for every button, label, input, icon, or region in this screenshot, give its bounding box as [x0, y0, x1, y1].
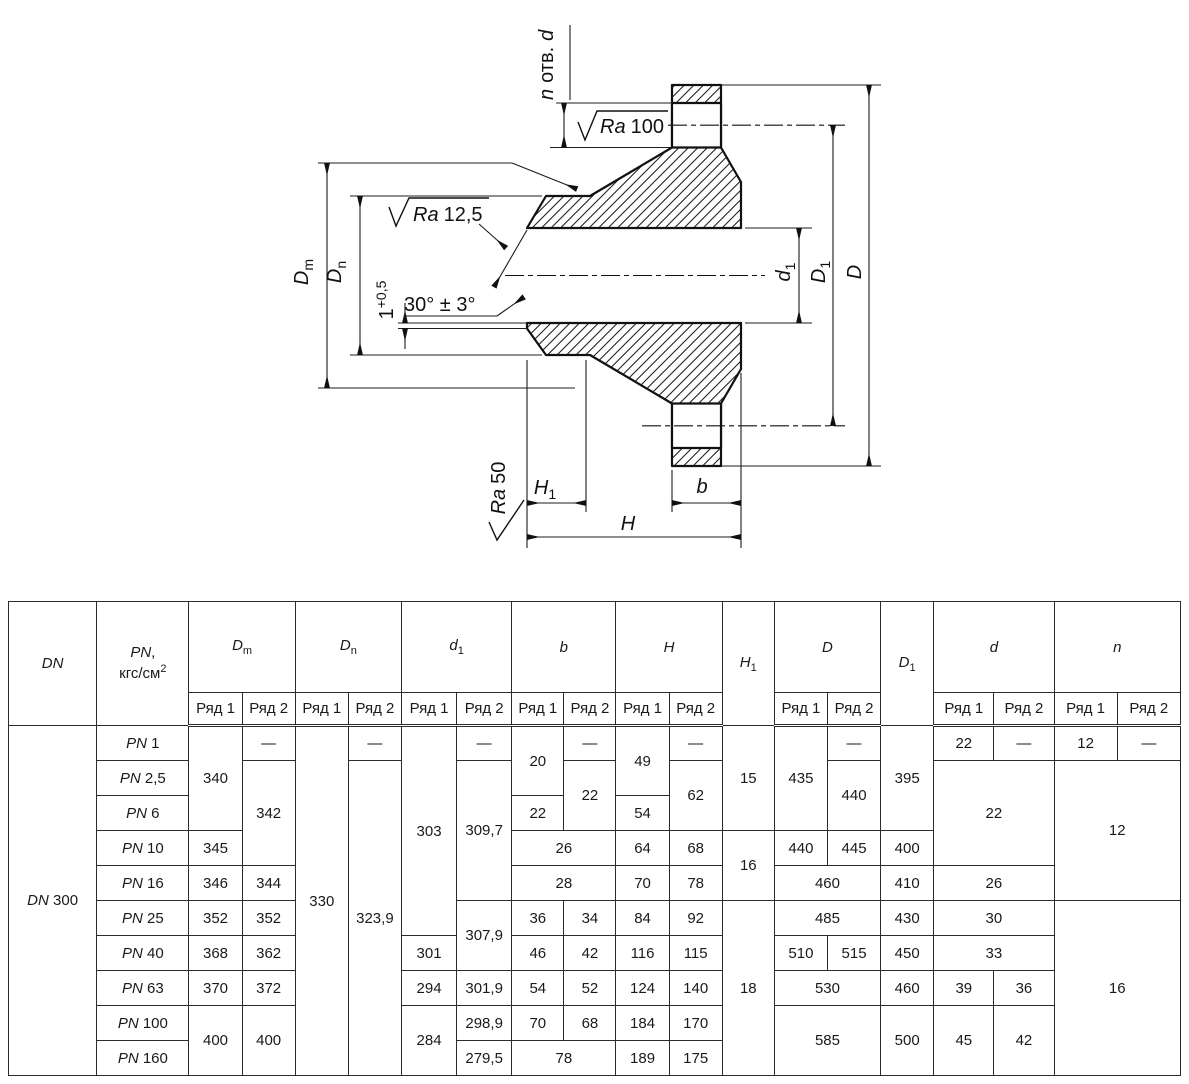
table-cell: 450: [881, 936, 934, 971]
dim-label-D: D: [844, 265, 866, 279]
table-cell: 352: [189, 901, 242, 936]
table-cell: 184: [616, 1006, 669, 1041]
label-land: 1+0,5: [373, 280, 398, 319]
pn-cell: PN 100: [97, 1006, 189, 1041]
table-cell: 400: [881, 831, 934, 866]
pn-cell: PN 16: [97, 866, 189, 901]
table-cell: 346: [189, 866, 242, 901]
table-cell: 45: [934, 1006, 994, 1076]
table-cell: 460: [881, 971, 934, 1006]
col-header-H: H: [616, 602, 722, 693]
pn-cell: PN 40: [97, 936, 189, 971]
col-header-D1: D1: [881, 602, 934, 726]
col-header-d: d: [934, 602, 1054, 693]
subheader-row2: Ряд 2: [242, 693, 295, 726]
flange-top-section: [527, 85, 741, 228]
table-cell: —: [1117, 726, 1180, 761]
subheader-row2: Ряд 2: [564, 693, 616, 726]
table-cell: 52: [564, 971, 616, 1006]
table-cell: 54: [512, 971, 564, 1006]
table-cell: 284: [401, 1006, 456, 1076]
dim-label-D1: D1: [808, 261, 833, 283]
table-cell: 430: [881, 901, 934, 936]
table-cell: 28: [512, 866, 616, 901]
table-cell: 500: [881, 1006, 934, 1076]
table-cell: 370: [189, 971, 242, 1006]
table-cell: 298,9: [457, 1006, 512, 1041]
table-cell: 352: [242, 901, 295, 936]
table-cell: 30: [934, 901, 1054, 936]
table-cell: 301: [401, 936, 456, 971]
table-cell: 42: [564, 936, 616, 971]
table-cell: —: [994, 726, 1054, 761]
table-cell: 39: [934, 971, 994, 1006]
table-cell: 16: [722, 831, 774, 901]
table-cell: 78: [512, 1041, 616, 1076]
table-cell: —: [564, 726, 616, 761]
table-cell: 140: [669, 971, 722, 1006]
table-cell: 510: [774, 936, 827, 971]
standard-page: nотв.d Ra100 Ra12,5 Ra50 30° ± 3° 1+0,5 …: [0, 0, 1189, 1076]
table-cell: 64: [616, 831, 669, 866]
pn-cell: PN 2,5: [97, 761, 189, 796]
dim-label-Dn: Dn: [324, 261, 349, 283]
col-header-H1: H1: [722, 602, 774, 726]
table-cell: 22: [934, 761, 1054, 866]
table-cell: 70: [512, 1006, 564, 1041]
subheader-row2: Ряд 2: [1117, 693, 1180, 726]
table-cell: 33: [934, 936, 1054, 971]
table-cell: —: [457, 726, 512, 761]
col-header-n: n: [1054, 602, 1181, 693]
table-cell: 12: [1054, 726, 1117, 761]
subheader-row2: Ряд 2: [669, 693, 722, 726]
table-cell: 340: [189, 726, 242, 831]
table-cell: 530: [774, 971, 880, 1006]
dim-label-Dm: Dm: [291, 259, 316, 285]
table-cell: 78: [669, 866, 722, 901]
table-cell: 342: [242, 761, 295, 866]
label-ra-12-5: Ra12,5: [413, 204, 483, 226]
dim-label-H1: H1: [534, 477, 556, 502]
table-cell: 279,5: [457, 1041, 512, 1076]
table-cell: 68: [669, 831, 722, 866]
table-cell: 20: [512, 726, 564, 796]
table-cell: 309,7: [457, 761, 512, 901]
dn-value-cell: DN 300: [9, 726, 97, 1076]
flange-dimension-table: DN PN,кгс/см2 Dm Dn d1 b H H1 D D1 d n Р…: [8, 601, 1181, 1076]
subheader-row1: Ряд 1: [774, 693, 827, 726]
table-cell: 84: [616, 901, 669, 936]
subheader-row2: Ряд 2: [348, 693, 401, 726]
table-cell: 189: [616, 1041, 669, 1076]
dim-label-H: H: [621, 513, 636, 535]
pn-cell: PN 160: [97, 1041, 189, 1076]
subheader-row2: Ряд 2: [457, 693, 512, 726]
table-cell: 440: [827, 761, 880, 831]
flange-bottom-section: [527, 323, 741, 466]
table-row-pn63: PN 63 370 372 294 301,9 54 52 124 140 53…: [9, 971, 1181, 1006]
table-cell: 34: [564, 901, 616, 936]
drawing-labels: nотв.d Ra100 Ra12,5 Ra50 30° ± 3° 1+0,5 …: [291, 29, 866, 535]
table-cell: 115: [669, 936, 722, 971]
table-row-pn25: PN 25 352 352 307,9 36 34 84 92 18 485 4…: [9, 901, 1181, 936]
col-header-pn: PN,кгс/см2: [97, 602, 189, 726]
label-ra-50: Ra50: [488, 462, 510, 515]
table-cell: —: [669, 726, 722, 761]
table-cell: 42: [994, 1006, 1054, 1076]
table-cell: 344: [242, 866, 295, 901]
flange-section-drawing: nотв.d Ra100 Ra12,5 Ra50 30° ± 3° 1+0,5 …: [0, 0, 1189, 590]
table-cell: 368: [189, 936, 242, 971]
table-cell: 68: [564, 1006, 616, 1041]
table-cell: 362: [242, 936, 295, 971]
label-angle: 30° ± 3°: [404, 294, 475, 316]
table-cell: 22: [564, 761, 616, 831]
table-row-pn40: PN 40 368 362 301 46 42 116 115 510 515 …: [9, 936, 1181, 971]
table-row-pn2-5: PN 2,5 342 323,9 309,7 22 62 440 22 12: [9, 761, 1181, 796]
table-cell: 16: [1054, 901, 1181, 1076]
table-cell: 49: [616, 726, 669, 796]
table-cell: 124: [616, 971, 669, 1006]
table-cell: 36: [994, 971, 1054, 1006]
pn-cell: PN 6: [97, 796, 189, 831]
pn-cell: PN 25: [97, 901, 189, 936]
table-cell: 410: [881, 866, 934, 901]
label-n-holes: nотв.d: [536, 29, 558, 100]
label-ra-100: Ra100: [600, 116, 664, 138]
col-header-Dn: Dn: [295, 602, 401, 693]
table-cell: 345: [189, 831, 242, 866]
table-cell: 15: [722, 726, 774, 831]
pn-cell: PN 10: [97, 831, 189, 866]
table-cell: 445: [827, 831, 880, 866]
table-cell: 395: [881, 726, 934, 831]
table-cell: 301,9: [457, 971, 512, 1006]
table-row-pn16: PN 16 346 344 28 70 78 460 410 26: [9, 866, 1181, 901]
table-row-pn100: PN 100 400 400 284 298,9 70 68 184 170 5…: [9, 1006, 1181, 1041]
table-cell: 22: [934, 726, 994, 761]
subheader-row1: Ряд 1: [616, 693, 669, 726]
table-cell: 116: [616, 936, 669, 971]
subheader-row1: Ряд 1: [189, 693, 242, 726]
subheader-row1: Ряд 1: [512, 693, 564, 726]
table-cell: 515: [827, 936, 880, 971]
table-cell: 330: [295, 726, 348, 1076]
pn-cell: PN 63: [97, 971, 189, 1006]
table-cell: 54: [616, 796, 669, 831]
subheader-row1: Ряд 1: [934, 693, 994, 726]
col-header-D: D: [774, 602, 880, 693]
pn-cell: PN 1: [97, 726, 189, 761]
table-cell: 307,9: [457, 901, 512, 971]
subheader-row1: Ряд 1: [295, 693, 348, 726]
table-cell: 440: [774, 831, 827, 866]
table-cell: 26: [512, 831, 616, 866]
dimension-lines: [318, 25, 881, 548]
table-cell: —: [348, 726, 401, 761]
subheader-row1: Ряд 1: [1054, 693, 1117, 726]
table-cell: 92: [669, 901, 722, 936]
table-cell: 585: [774, 1006, 880, 1076]
table-cell: 26: [934, 866, 1054, 901]
table-cell: 175: [669, 1041, 722, 1076]
table-cell: 372: [242, 971, 295, 1006]
subheader-row2: Ряд 2: [994, 693, 1054, 726]
table-cell: 36: [512, 901, 564, 936]
dim-label-d1: d1: [773, 262, 798, 281]
table-cell: 400: [242, 1006, 295, 1076]
col-header-b: b: [512, 602, 616, 693]
table-cell: 62: [669, 761, 722, 831]
table-cell: 400: [189, 1006, 242, 1076]
table-cell: 460: [774, 866, 880, 901]
col-header-d1: d1: [401, 602, 511, 693]
table-cell: 70: [616, 866, 669, 901]
table-cell: 294: [401, 971, 456, 1006]
subheader-row1: Ряд 1: [401, 693, 456, 726]
table-cell: 170: [669, 1006, 722, 1041]
table-cell: —: [242, 726, 295, 761]
subheader-row2: Ряд 2: [827, 693, 880, 726]
table-cell: 18: [722, 901, 774, 1076]
table-row-pn1: DN 300 PN 1 340 — 330 — 303 — 20 — 49 — …: [9, 726, 1181, 761]
table-cell: 46: [512, 936, 564, 971]
dim-label-b: b: [696, 476, 707, 498]
col-header-Dm: Dm: [189, 602, 295, 693]
table-cell: 323,9: [348, 761, 401, 1076]
table-cell: 303: [401, 726, 456, 936]
table-cell: 485: [774, 901, 880, 936]
table-cell: 22: [512, 796, 564, 831]
table-cell: —: [827, 726, 880, 761]
table-cell: 12: [1054, 761, 1181, 901]
col-header-dn: DN: [9, 602, 97, 726]
table-cell: 435: [774, 726, 827, 831]
